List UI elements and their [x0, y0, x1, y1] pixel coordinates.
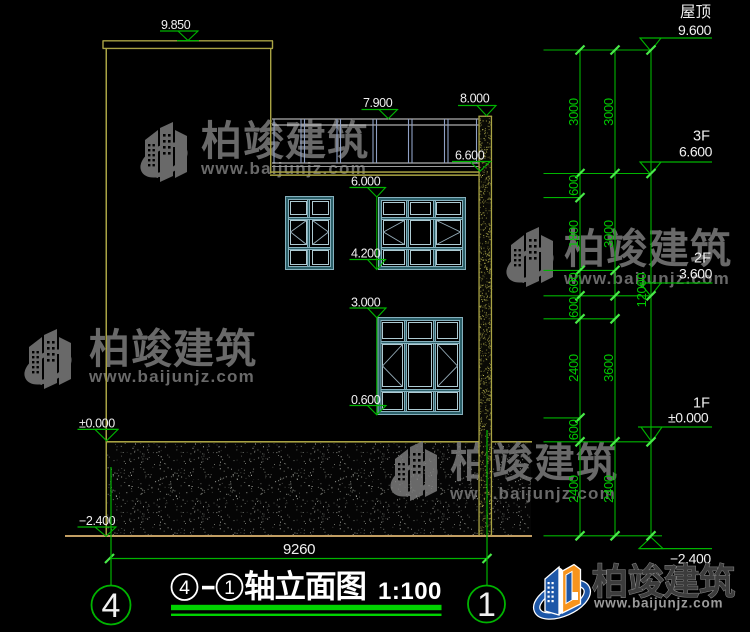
svg-text:−2.400: −2.400: [79, 514, 116, 528]
svg-text:2400: 2400: [566, 475, 581, 503]
svg-text:轴立面图: 轴立面图: [244, 568, 366, 604]
svg-text:600: 600: [566, 419, 581, 440]
svg-text:柏竣建筑: 柏竣建筑: [89, 326, 257, 372]
svg-text:www.baijunjz.com: www.baijunjz.com: [593, 596, 723, 611]
svg-text:3000: 3000: [566, 98, 581, 126]
svg-text:1: 1: [224, 577, 235, 599]
svg-text:2400: 2400: [601, 475, 616, 503]
svg-text:600: 600: [566, 273, 581, 294]
svg-text:6.000: 6.000: [351, 175, 381, 189]
svg-text:12000: 12000: [634, 273, 649, 308]
svg-text:600: 600: [566, 297, 581, 318]
svg-text:www.baijunjz.com: www.baijunjz.com: [88, 367, 255, 386]
svg-text:www.baijunjz.com: www.baijunjz.com: [449, 484, 616, 503]
svg-text:4.200: 4.200: [351, 247, 381, 261]
svg-text:3600: 3600: [601, 354, 616, 382]
svg-text:1:100: 1:100: [378, 578, 442, 605]
svg-text:6.600: 6.600: [679, 144, 713, 160]
svg-text:4: 4: [102, 587, 121, 625]
svg-text:3.600: 3.600: [679, 266, 713, 282]
svg-text:±0.000: ±0.000: [79, 417, 115, 431]
svg-text:3000: 3000: [601, 98, 616, 126]
svg-text:3000: 3000: [601, 220, 616, 248]
svg-text:9.600: 9.600: [678, 22, 712, 38]
svg-text:±0.000: ±0.000: [668, 410, 709, 426]
svg-text:2F: 2F: [694, 251, 711, 267]
svg-text:1: 1: [477, 586, 496, 624]
svg-text:600: 600: [566, 175, 581, 196]
svg-text:6.600: 6.600: [455, 149, 485, 163]
svg-text:9260: 9260: [283, 541, 315, 558]
svg-text:3F: 3F: [693, 129, 710, 145]
svg-text:2400: 2400: [566, 354, 581, 382]
svg-text:4: 4: [179, 577, 190, 599]
svg-text:9.850: 9.850: [161, 18, 191, 32]
svg-text:柏竣建筑: 柏竣建筑: [450, 440, 618, 486]
svg-text:1800: 1800: [566, 220, 581, 248]
svg-text:屋顶: 屋顶: [680, 3, 711, 21]
svg-text:7.900: 7.900: [363, 96, 393, 110]
svg-text:8.000: 8.000: [460, 92, 490, 106]
